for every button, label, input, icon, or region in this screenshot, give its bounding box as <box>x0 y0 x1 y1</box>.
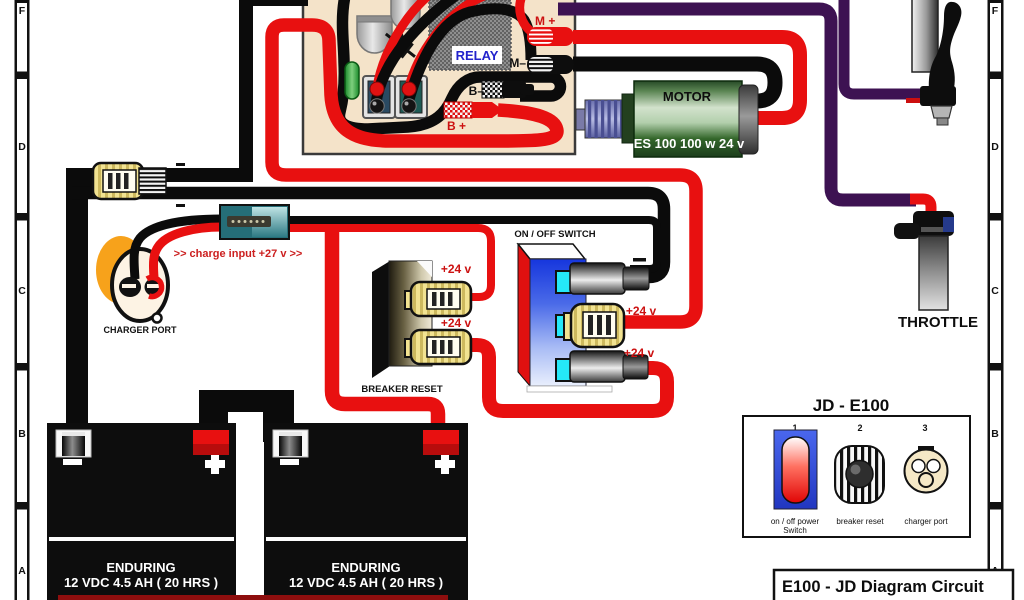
svg-text:M +: M + <box>535 14 555 28</box>
svg-text:12 VDC 4.5 AH ( 20 HRS ): 12 VDC 4.5 AH ( 20 HRS ) <box>64 575 218 590</box>
svg-text:MOTOR: MOTOR <box>663 89 712 104</box>
svg-text:+24 v: +24 v <box>626 304 657 318</box>
svg-text:D: D <box>991 141 999 153</box>
svg-text:3: 3 <box>922 423 927 433</box>
svg-text:F: F <box>992 5 999 17</box>
svg-text:2: 2 <box>857 423 862 433</box>
svg-text:B +: B + <box>447 119 466 133</box>
svg-text:>> charge input +27 v >>: >> charge input +27 v >> <box>174 248 303 260</box>
svg-text:B–: B– <box>469 84 485 98</box>
svg-text:BREAKER RESET: BREAKER RESET <box>361 384 442 395</box>
svg-text:B: B <box>991 428 999 440</box>
svg-text:+24 v: +24 v <box>624 346 655 360</box>
svg-text:ENDURING: ENDURING <box>331 560 400 575</box>
svg-text:ES 100 100 w 24 v: ES 100 100 w 24 v <box>634 136 745 151</box>
svg-text:ENDURING: ENDURING <box>106 560 175 575</box>
svg-text:breaker reset: breaker reset <box>836 517 884 526</box>
svg-text:THROTTLE: THROTTLE <box>898 314 978 331</box>
svg-text:C: C <box>18 285 26 297</box>
svg-text:CHARGER PORT: CHARGER PORT <box>103 325 177 335</box>
svg-text:B: B <box>18 428 26 440</box>
svg-text:ON / OFF SWITCH: ON / OFF SWITCH <box>514 229 595 240</box>
svg-text:A: A <box>18 565 26 577</box>
svg-text:+24 v: +24 v <box>441 262 472 276</box>
svg-text:on / off power: on / off power <box>771 517 820 526</box>
svg-text:D: D <box>18 141 26 153</box>
svg-text:JD - E100: JD - E100 <box>813 396 890 415</box>
svg-text:Switch: Switch <box>783 526 807 535</box>
svg-text:+24 v: +24 v <box>441 316 472 330</box>
svg-text:E100 - JD Diagram Circuit: E100 - JD Diagram Circuit <box>782 578 984 596</box>
svg-text:F: F <box>19 5 26 17</box>
svg-text:12 VDC 4.5 AH ( 20 HRS ): 12 VDC 4.5 AH ( 20 HRS ) <box>289 575 443 590</box>
svg-text:C: C <box>991 285 999 297</box>
svg-text:charger port: charger port <box>904 517 948 526</box>
svg-text:M–: M– <box>509 56 526 70</box>
svg-text:RELAY: RELAY <box>456 48 499 63</box>
